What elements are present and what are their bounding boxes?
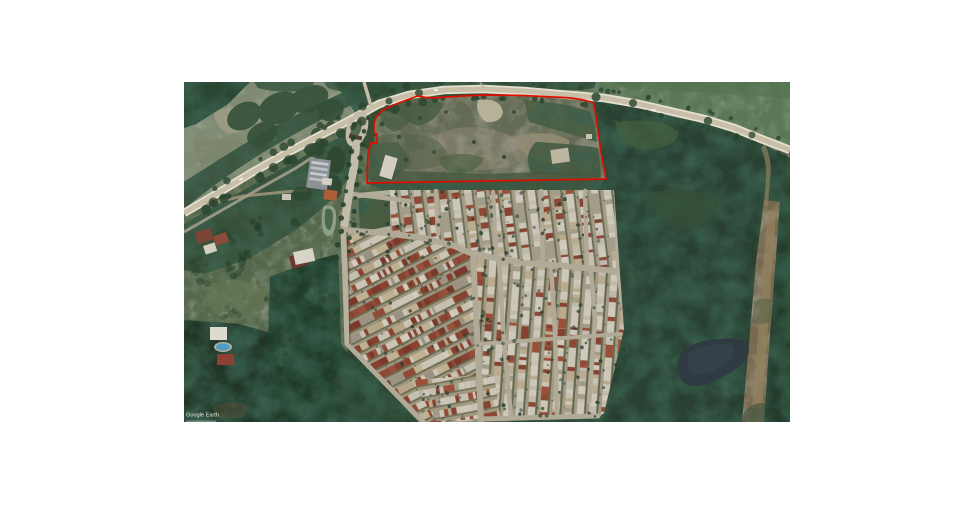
svg-text:Google Earth: Google Earth <box>186 413 219 419</box>
